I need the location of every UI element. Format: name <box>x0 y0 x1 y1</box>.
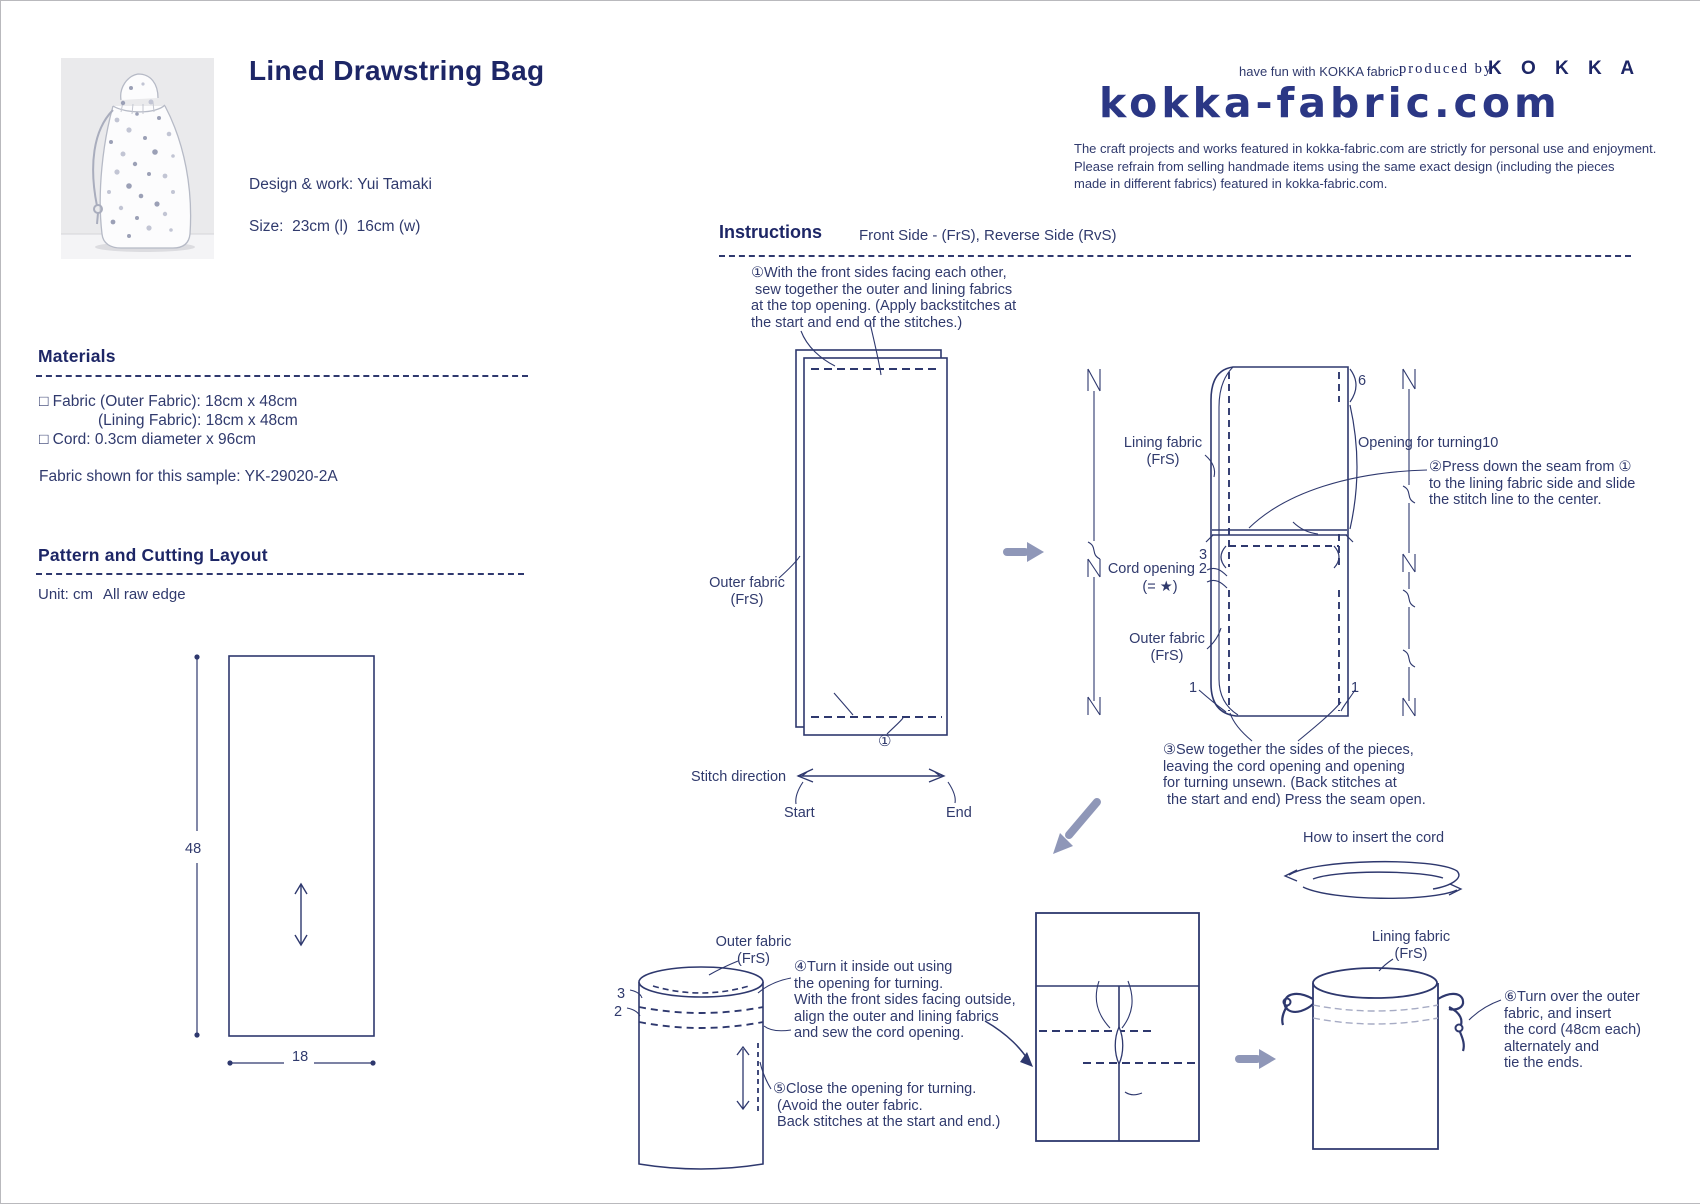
stitch-direction-legend <box>796 769 955 804</box>
step6-bag-diagram <box>1282 959 1501 1149</box>
step4-diagram <box>627 961 1033 1169</box>
diagram-lineart <box>1 1 1700 1203</box>
cord-coil-illustration <box>1285 862 1461 899</box>
pattern-diagram <box>194 654 375 1065</box>
arrow-right-icon <box>1007 542 1044 562</box>
arrow-diagonal-icon <box>1053 802 1097 854</box>
length-break-line-right <box>1403 369 1415 716</box>
arrow-right-2-icon <box>1239 1049 1276 1069</box>
length-break-line-left <box>1088 369 1100 715</box>
instruction-sheet: Lined Drawstring Bag Design & work: Yui … <box>0 0 1700 1204</box>
step2-diagram <box>1088 367 1427 741</box>
step5-box-diagram <box>1036 913 1199 1141</box>
step1-diagram <box>779 323 955 804</box>
